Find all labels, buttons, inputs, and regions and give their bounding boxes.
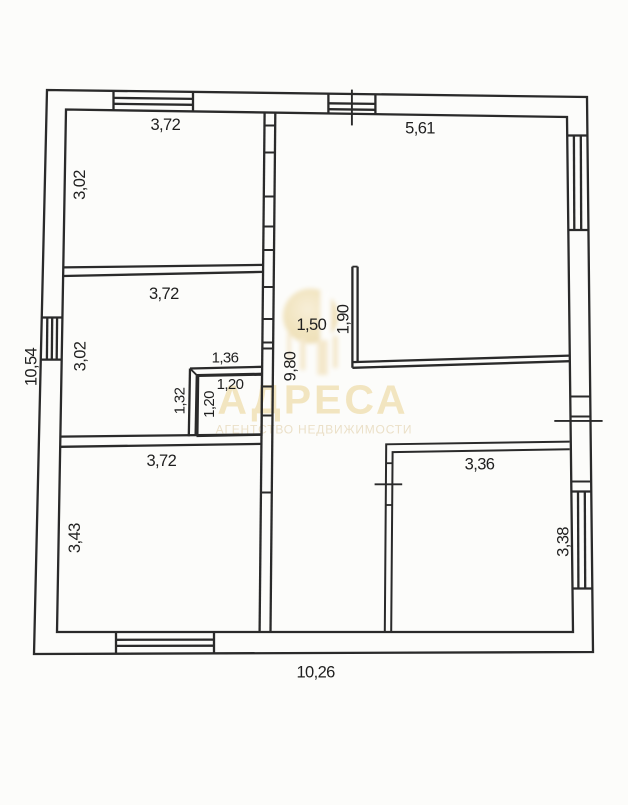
- svg-text:3,02: 3,02: [71, 170, 89, 200]
- svg-text:3,72: 3,72: [149, 285, 179, 303]
- svg-text:10,26: 10,26: [296, 663, 335, 681]
- svg-text:3,72: 3,72: [146, 452, 176, 470]
- svg-text:3,43: 3,43: [66, 523, 84, 553]
- svg-text:9,80: 9,80: [282, 351, 300, 381]
- svg-text:3,38: 3,38: [555, 527, 573, 557]
- svg-text:1,50: 1,50: [296, 316, 326, 334]
- svg-text:5,61: 5,61: [405, 120, 435, 138]
- svg-text:1,20: 1,20: [201, 391, 218, 418]
- svg-text:1,90: 1,90: [334, 304, 352, 334]
- svg-text:3,02: 3,02: [72, 341, 90, 371]
- svg-text:10,54: 10,54: [23, 347, 41, 386]
- svg-text:3,72: 3,72: [150, 116, 180, 134]
- svg-text:1,36: 1,36: [212, 350, 239, 367]
- svg-text:3,36: 3,36: [465, 455, 495, 473]
- svg-text:1,20: 1,20: [217, 376, 244, 393]
- svg-text:АДРЕСА: АДРЕСА: [217, 377, 408, 423]
- svg-text:1,32: 1,32: [172, 387, 189, 414]
